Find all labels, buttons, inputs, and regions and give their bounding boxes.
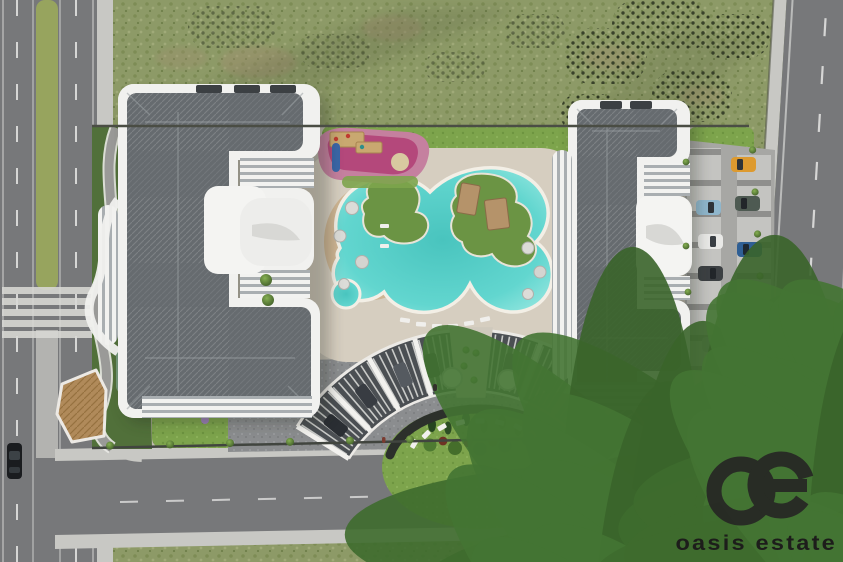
logo-wordmark: oasis estate bbox=[624, 533, 837, 554]
slide bbox=[332, 143, 340, 172]
road-median bbox=[36, 0, 58, 290]
monogram-e-bar bbox=[755, 479, 807, 492]
oe-monogram-icon bbox=[703, 447, 831, 531]
terrace-notch bbox=[240, 158, 314, 188]
black-car bbox=[7, 443, 22, 479]
sand-pit bbox=[391, 153, 409, 171]
median-concrete bbox=[36, 330, 58, 458]
terrace-notch bbox=[644, 163, 690, 196]
parked-car-orange bbox=[731, 157, 756, 172]
parked-car-white bbox=[698, 234, 723, 249]
parked-car-dark-gray bbox=[698, 266, 723, 281]
parked-car-dark-green bbox=[735, 196, 760, 211]
aerial-render: oasis estate bbox=[0, 0, 843, 562]
parked-car-light-blue bbox=[696, 200, 721, 215]
roof-vents bbox=[196, 85, 296, 93]
oasis-estate-logo: oasis estate bbox=[647, 447, 837, 554]
left-building bbox=[89, 84, 330, 424]
terrace-notch bbox=[240, 270, 310, 298]
balcony-band bbox=[142, 396, 312, 418]
